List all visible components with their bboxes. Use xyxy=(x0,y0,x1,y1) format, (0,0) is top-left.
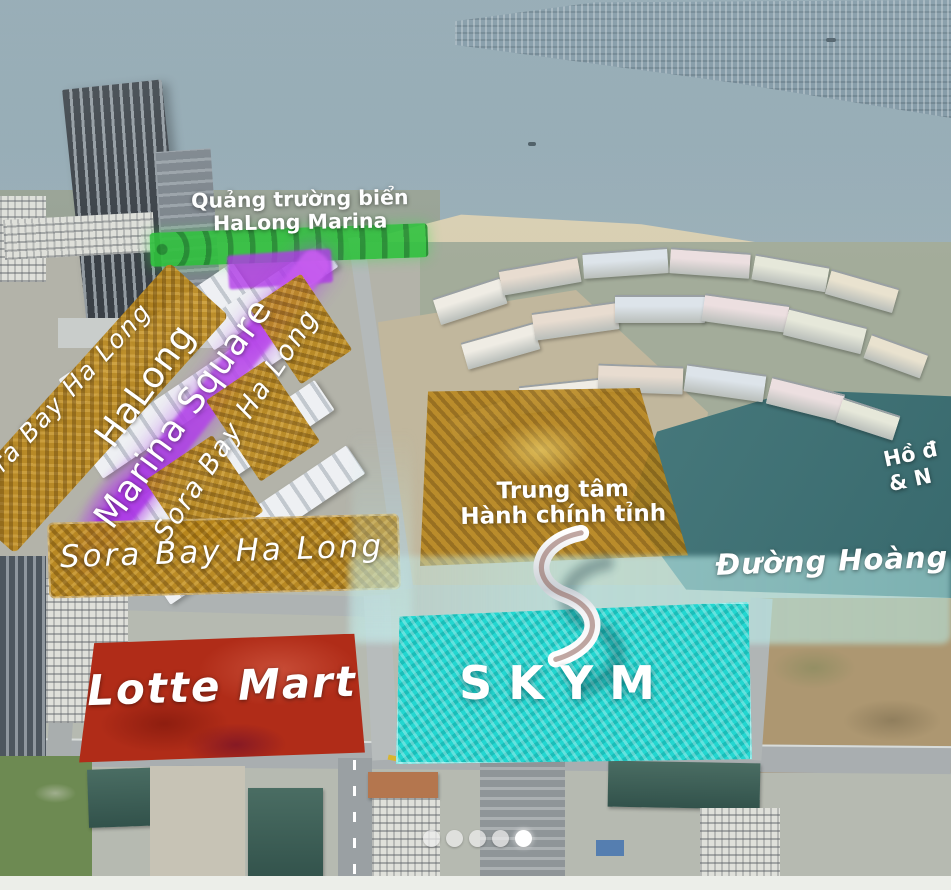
townhouse-block xyxy=(531,301,619,341)
townhouse-block xyxy=(835,397,900,440)
townhouse-block xyxy=(669,247,751,279)
carousel-dot[interactable] xyxy=(469,830,486,847)
townhouse-block xyxy=(432,277,507,325)
aerial-masterplan-map: Quảng trường biển HaLong Marina HaLong M… xyxy=(0,0,951,890)
townhouse-block xyxy=(701,293,789,333)
beach-square-label-line2: HaLong Marina xyxy=(168,209,432,237)
townhouse-block xyxy=(783,308,867,355)
admin-center-label-line2: Hành chính tỉnh xyxy=(460,501,666,529)
townhouse-block xyxy=(460,322,540,370)
carousel-dot[interactable] xyxy=(492,830,509,847)
admin-center-label: Trung tâm Hành chính tỉnh xyxy=(460,476,667,529)
skym-s-logo xyxy=(495,526,635,664)
townhouse-block xyxy=(863,334,928,379)
townhouse-block xyxy=(751,254,829,293)
lotte-mart-label: Lotte Mart xyxy=(86,658,357,714)
bottom-frame-strip xyxy=(0,876,951,890)
townhouse-block xyxy=(825,269,899,313)
carousel-dot[interactable] xyxy=(446,830,463,847)
townhouse-block xyxy=(615,295,705,323)
townhouse-block xyxy=(765,376,845,421)
carousel-dot[interactable] xyxy=(423,830,440,847)
carousel-dot-active[interactable] xyxy=(515,830,532,847)
townhouse-block xyxy=(683,364,766,403)
carousel-dots xyxy=(423,830,532,847)
townhouse-block xyxy=(582,247,669,279)
townhouse-block xyxy=(498,256,581,295)
skym-label: SKYM xyxy=(459,658,671,710)
beach-square-label: Quảng trường biển HaLong Marina xyxy=(168,186,433,237)
